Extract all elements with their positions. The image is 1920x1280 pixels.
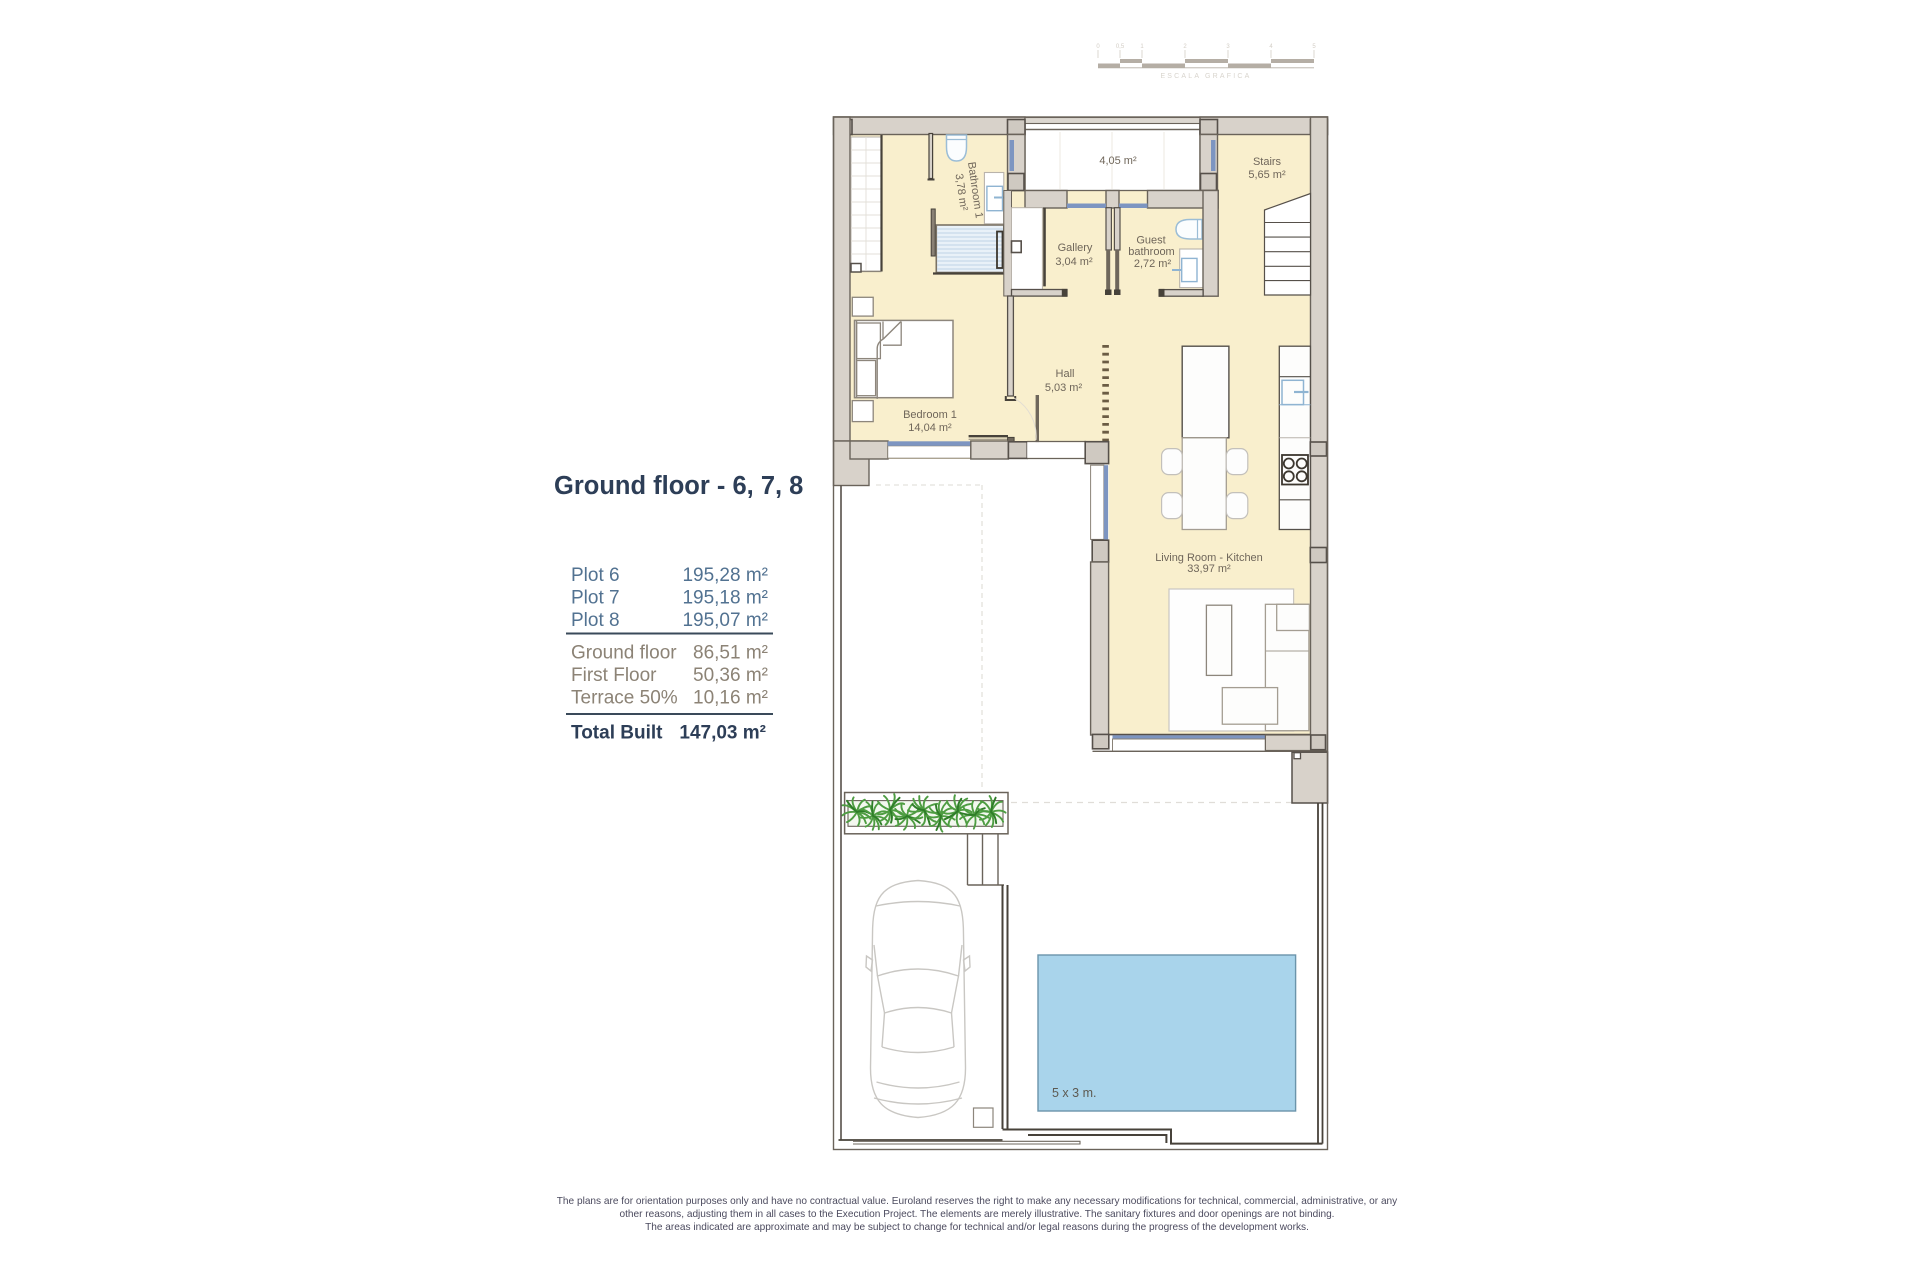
svg-text:4,05 m²: 4,05 m² xyxy=(1099,155,1137,167)
svg-text:5,65 m²: 5,65 m² xyxy=(1248,169,1286,181)
svg-text:Plot 8: Plot 8 xyxy=(571,610,620,631)
svg-text:other reasons, adjusting them: other reasons, adjusting them in all cas… xyxy=(620,1209,1335,1220)
svg-text:Bedroom 1: Bedroom 1 xyxy=(903,409,957,421)
svg-text:14,04 m²: 14,04 m² xyxy=(908,422,952,434)
svg-text:5,03 m²: 5,03 m² xyxy=(1045,382,1083,394)
svg-text:Plot 7: Plot 7 xyxy=(571,588,620,609)
svg-text:195,28 m²: 195,28 m² xyxy=(682,565,768,586)
svg-text:bathroom: bathroom xyxy=(1128,246,1174,258)
svg-text:Gallery: Gallery xyxy=(1058,242,1093,254)
svg-text:First Floor: First Floor xyxy=(571,665,657,686)
svg-text:Stairs: Stairs xyxy=(1253,156,1282,168)
svg-text:The areas indicated are approx: The areas indicated are approximate and … xyxy=(645,1222,1309,1233)
svg-text:33,97 m²: 33,97 m² xyxy=(1187,563,1231,575)
svg-text:Total Built: Total Built xyxy=(571,723,663,744)
svg-text:3,04 m²: 3,04 m² xyxy=(1055,256,1093,268)
svg-text:10,16 m²: 10,16 m² xyxy=(693,688,768,709)
svg-text:Ground floor - 6, 7, 8: Ground floor - 6, 7, 8 xyxy=(554,472,803,500)
svg-text:5 x 3 m.: 5 x 3 m. xyxy=(1052,1086,1096,1100)
svg-text:ESCALA GRAFICA: ESCALA GRAFICA xyxy=(1160,73,1251,80)
svg-text:The plans are for orientation: The plans are for orientation purposes o… xyxy=(557,1196,1398,1207)
svg-text:Hall: Hall xyxy=(1056,368,1075,380)
svg-text:0,5: 0,5 xyxy=(1116,44,1125,50)
svg-text:86,51 m²: 86,51 m² xyxy=(693,643,768,664)
svg-text:195,07 m²: 195,07 m² xyxy=(682,610,768,631)
svg-text:195,18 m²: 195,18 m² xyxy=(682,588,768,609)
svg-text:Guest: Guest xyxy=(1136,235,1165,247)
svg-text:147,03 m²: 147,03 m² xyxy=(679,723,766,744)
svg-text:2,72 m²: 2,72 m² xyxy=(1134,258,1172,270)
svg-text:50,36 m²: 50,36 m² xyxy=(693,665,768,686)
svg-text:Plot 6: Plot 6 xyxy=(571,565,620,586)
svg-text:Ground floor: Ground floor xyxy=(571,643,677,664)
svg-text:Terrace 50%: Terrace 50% xyxy=(571,688,678,709)
